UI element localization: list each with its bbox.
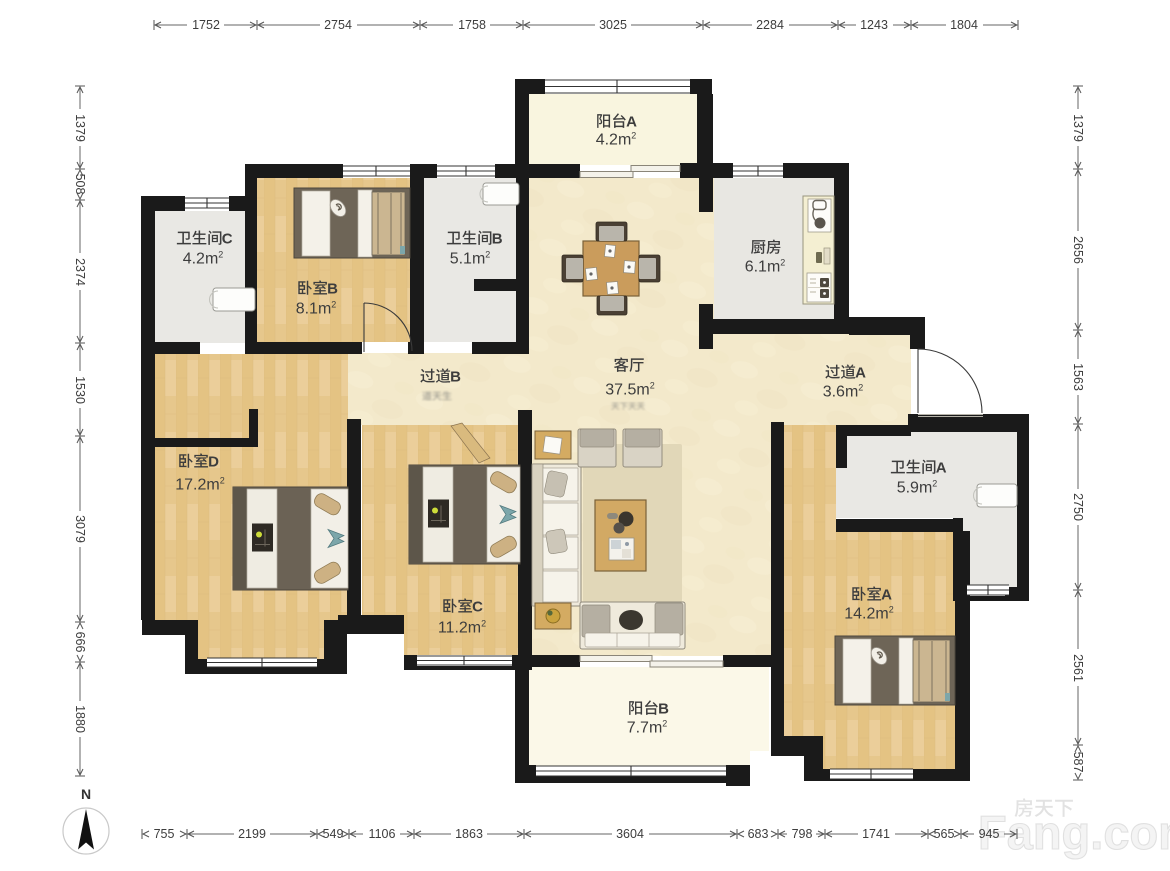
svg-text:3.6m2: 3.6m2 <box>823 383 864 401</box>
svg-text:1804: 1804 <box>950 18 978 32</box>
svg-text:B: B <box>327 281 338 298</box>
svg-text:C: C <box>222 231 233 248</box>
svg-text:2284: 2284 <box>756 18 784 32</box>
svg-text:Fang.com: Fang.com <box>978 806 1170 859</box>
svg-text:508: 508 <box>73 174 87 195</box>
svg-text:549: 549 <box>323 827 344 841</box>
svg-text:C: C <box>472 599 483 616</box>
svg-text:5.1m2: 5.1m2 <box>450 250 491 268</box>
svg-text:798: 798 <box>792 827 813 841</box>
svg-text:683: 683 <box>748 827 769 841</box>
svg-text:3604: 3604 <box>616 827 644 841</box>
svg-text:1563: 1563 <box>1071 363 1085 391</box>
svg-text:37.5m2: 37.5m2 <box>605 381 654 399</box>
svg-text:N: N <box>81 786 91 802</box>
svg-text:2561: 2561 <box>1071 654 1085 682</box>
svg-text:6.1m2: 6.1m2 <box>745 258 786 276</box>
svg-text:7.7m2: 7.7m2 <box>627 719 668 737</box>
svg-text:1741: 1741 <box>862 827 890 841</box>
svg-text:1758: 1758 <box>458 18 486 32</box>
svg-text:14.2m2: 14.2m2 <box>844 605 893 623</box>
svg-text:B: B <box>450 369 461 386</box>
svg-text:1379: 1379 <box>73 114 87 142</box>
svg-text:3079: 3079 <box>73 515 87 543</box>
svg-text:755: 755 <box>154 827 175 841</box>
svg-text:1752: 1752 <box>192 18 220 32</box>
svg-text:A: A <box>855 365 866 382</box>
svg-text:3025: 3025 <box>599 18 627 32</box>
svg-text:2199: 2199 <box>238 827 266 841</box>
svg-text:945: 945 <box>979 827 1000 841</box>
svg-text:B: B <box>492 231 503 248</box>
svg-text:B: B <box>658 701 669 718</box>
svg-text:D: D <box>208 454 219 471</box>
svg-text:2656: 2656 <box>1071 236 1085 264</box>
svg-text:4.2m2: 4.2m2 <box>596 131 637 149</box>
svg-text:2754: 2754 <box>324 18 352 32</box>
svg-text:1863: 1863 <box>455 827 483 841</box>
svg-text:1243: 1243 <box>860 18 888 32</box>
svg-text:A: A <box>881 587 892 604</box>
svg-text:666: 666 <box>73 632 87 653</box>
svg-text:A: A <box>936 460 947 477</box>
svg-text:4.2m2: 4.2m2 <box>183 250 224 268</box>
svg-text:2750: 2750 <box>1071 493 1085 521</box>
svg-text:5.9m2: 5.9m2 <box>897 479 938 497</box>
svg-text:11.2m2: 11.2m2 <box>438 619 486 637</box>
svg-text:8.1m2: 8.1m2 <box>296 300 337 318</box>
svg-text:587: 587 <box>1071 752 1085 773</box>
svg-text:1530: 1530 <box>73 376 87 404</box>
svg-text:2374: 2374 <box>73 258 87 286</box>
svg-text:1379: 1379 <box>1071 114 1085 142</box>
svg-text:A: A <box>626 114 637 131</box>
svg-text:565: 565 <box>934 827 955 841</box>
svg-text:1106: 1106 <box>369 827 396 841</box>
svg-text:1880: 1880 <box>73 705 87 733</box>
svg-text:17.2m2: 17.2m2 <box>175 476 224 494</box>
